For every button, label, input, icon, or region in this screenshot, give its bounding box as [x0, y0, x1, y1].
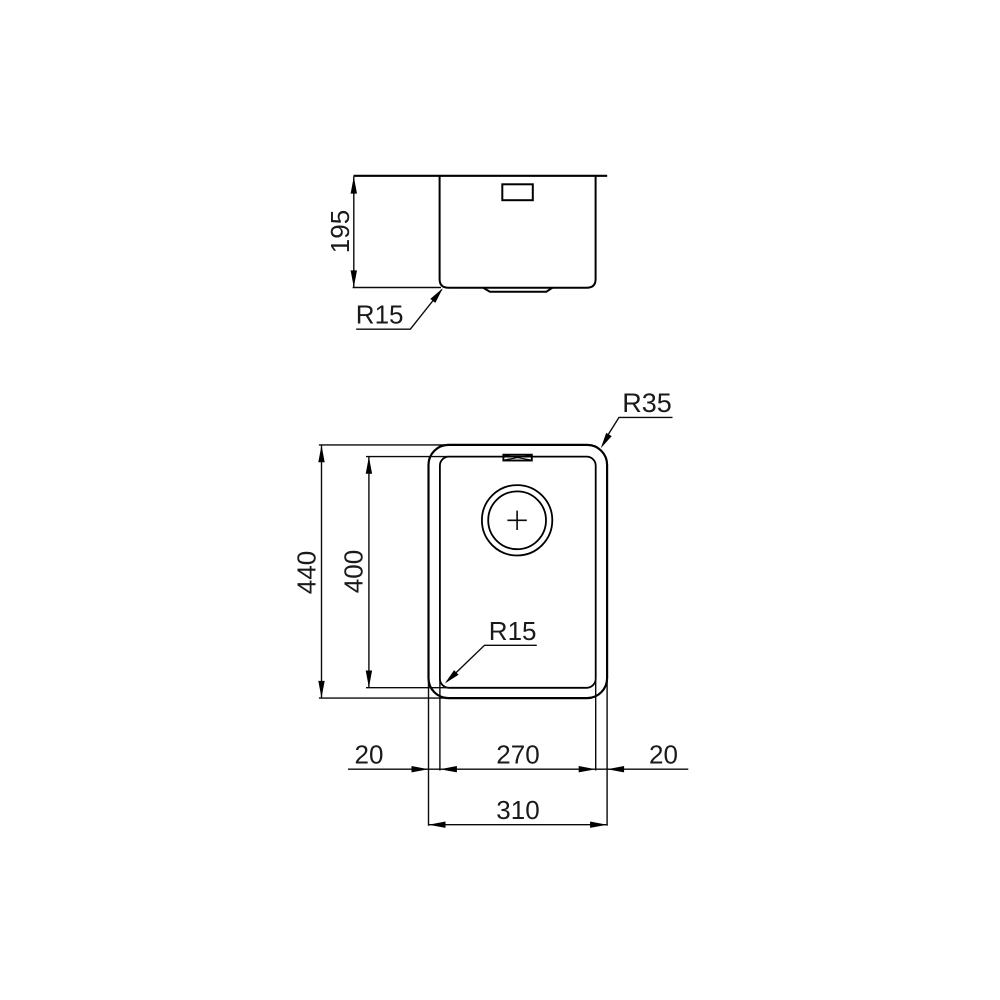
svg-text:20: 20 [355, 740, 384, 770]
svg-text:195: 195 [325, 210, 355, 253]
svg-text:400: 400 [339, 550, 369, 593]
svg-text:270: 270 [496, 740, 539, 770]
svg-text:20: 20 [649, 740, 678, 770]
svg-text:310: 310 [496, 795, 539, 825]
svg-text:R35: R35 [622, 388, 672, 418]
svg-text:R15: R15 [356, 299, 404, 329]
svg-text:440: 440 [292, 551, 322, 594]
svg-text:R15: R15 [489, 616, 537, 646]
